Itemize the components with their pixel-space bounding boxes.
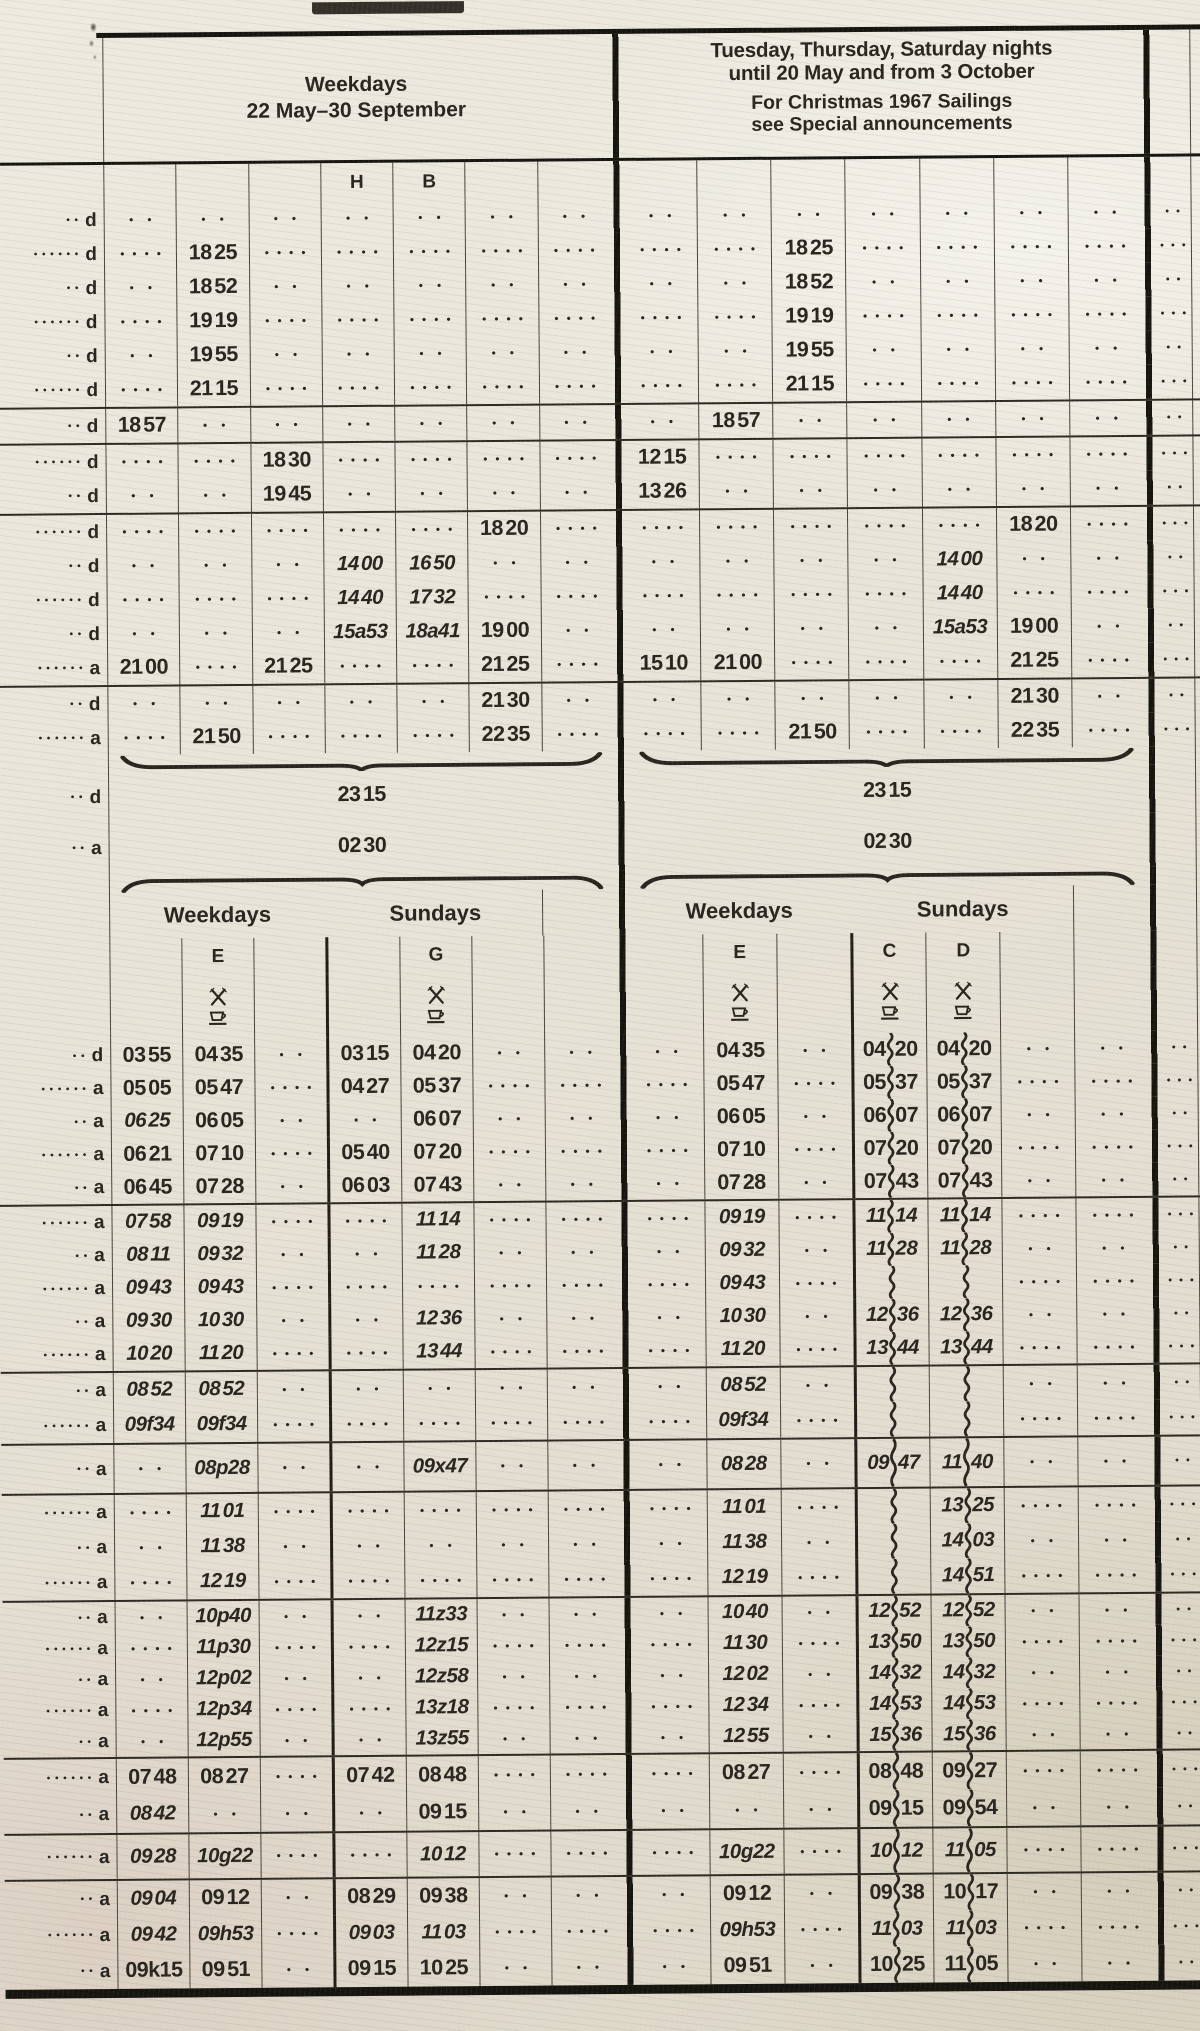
dots-cell: •••• [782,1689,856,1721]
stub-cell [1159,812,1196,866]
leader-dots: •• [1020,275,1056,287]
time-value: 19 00 [481,620,529,642]
time-value: 04 27 [341,1076,389,1098]
cup-icon [425,1009,448,1024]
leader-dots: •• [800,622,836,634]
time-cell: 07 20 [401,1135,473,1169]
leader-dots: •••• [715,379,764,391]
time-cell: 18 57 [698,404,772,439]
leader-dots: •••• [123,593,172,605]
time-cell: 10g22 [188,1834,260,1879]
time-cell: 18 20 [996,507,1070,542]
time-hours: 11 [942,1452,962,1473]
time-value: 12p34 [196,1699,252,1720]
leader-dots: •• [724,345,760,357]
center-heavy-divider [618,1268,632,1301]
stub-dots-cell: •• [1157,470,1194,504]
leader-dots: •••• [718,727,767,739]
weekdays-group-label: Weekdays [629,897,849,925]
time-cell: 08 42 [117,1795,188,1833]
dots-cell: •••• [778,1132,852,1166]
leader-dots: •• [1094,206,1130,218]
time-cell: 05 37 [400,1069,472,1103]
time-value: 04 35 [716,1040,764,1062]
leader-dots: •••• [564,1503,613,1515]
time-cell: 17 32 [396,580,469,615]
leader-dots: •••• [490,1279,539,1291]
dots-cell: •• [636,1791,709,1829]
leader-dots: •••• [1094,1340,1143,1352]
time-cell [854,1489,930,1525]
time-cell: 09 30 [113,1304,184,1338]
leader-dots: •• [808,1730,844,1742]
dots-cell: •••• [540,579,613,614]
leader-dots: ••• [1167,1140,1199,1152]
row-label: ••••••a [2,1495,114,1531]
center-heavy-divider [619,1404,633,1439]
dots-cell: •••• [624,232,697,267]
left-panel-row: 05 0505 47••••04 2705 37•••••••• [110,1068,616,1105]
dots-cell: •••• [697,300,771,335]
time-cell: 0915 [857,1790,933,1828]
dots-cell: •• [116,1663,187,1695]
time-hours: 11 [945,1918,965,1939]
time-value: 10p40 [195,1606,251,1627]
dots-cell: •••• [779,1266,853,1300]
dots-cell: •• [709,1791,783,1829]
time-minutes: 52 [899,1601,921,1622]
left-panel-row: 09 0409 12••08 2909 38•••• [117,1877,623,1917]
leader-dots: •••• [865,520,914,532]
leader-dots: •• [493,557,529,569]
dots-cell: •• [920,264,994,299]
right-panel-row: ••10 30••12361236•••• [632,1297,1150,1334]
time-cell: 1252 [931,1595,1005,1627]
leader-dots: •••• [797,1501,846,1513]
row-label: ••••••a [0,1206,112,1240]
leader-dots: •••• [273,1418,322,1430]
time-cell: 1453 [856,1689,932,1721]
arrive-marker: a [98,1701,109,1720]
column-letter: H [350,172,364,191]
leader-dots: ••• [1169,1411,1200,1423]
leader-dots: ••• [1170,1498,1200,1510]
time-value: 13z18 [415,1697,469,1718]
center-heavy-divider [620,1561,634,1596]
dots-cell: •• [539,405,612,440]
time-cell: 21 50 [775,715,849,750]
leader-dots: •• [77,1463,93,1475]
time-value: 18a41 [405,621,460,642]
leader-dots: •••••• [46,1643,95,1655]
left-panel-row: 06 2506 05••••06 07•••• [111,1101,617,1138]
dots-cell: •• [541,683,614,718]
leader-dots: •••• [716,521,765,533]
wavy-line-icon [892,1790,900,1827]
time-value: 09 43 [719,1273,765,1294]
time-cell: 19 00 [996,609,1070,644]
dots-cell: •• [320,201,393,236]
stub-cell [1160,884,1197,930]
time-cell: 09 15 [333,1951,407,1988]
leader-dots: •• [565,486,601,498]
depart-marker: d [90,788,102,807]
cup-icon [952,1005,975,1020]
dots-cell: •••• [633,1403,706,1439]
time-hours: 10 [870,1954,893,1976]
dots-cell: •• [545,1167,617,1201]
leader-dots: •• [1030,1455,1066,1467]
dots-cell: •• [255,1169,327,1203]
time-cell: 04 35 [182,1038,254,1072]
dots-cell: •••• [107,514,179,549]
wavy-line-icon [963,1366,971,1401]
leader-dots: •• [140,1611,176,1623]
leader-dots: •••• [790,450,839,462]
time-cell: 10 30 [184,1304,256,1338]
catering-symbols-cell [630,970,703,1035]
leader-dots: •••• [562,1279,611,1291]
center-heavy-divider [613,647,627,681]
wavy-line-icon [888,1266,896,1299]
time-value: 10g22 [197,1846,253,1867]
center-heavy-divider [617,1167,631,1200]
leader-dots: •••• [265,246,314,258]
row-label: ••d [0,617,107,652]
time-cell: 06 25 [112,1104,183,1138]
leader-dots: •• [418,211,454,223]
time-cell: 1403 [930,1523,1004,1559]
arrive-marker: a [93,1112,104,1131]
time-value: 18 30 [263,450,311,472]
dots-cell: •• [697,266,771,301]
dots-cell: •• [332,1794,406,1832]
time-cell: 08 52 [706,1368,780,1404]
leader-dots: •••• [1024,1843,1073,1855]
dots-cell: •••• [701,716,775,751]
time-value: 09 32 [197,1244,243,1265]
leader-dots: •••• [866,726,915,738]
dots-cell: •• [634,1525,707,1561]
leader-dots: •••• [555,380,604,392]
right-panel-row: ••08 28••09471140•••• [633,1437,1151,1489]
time-value: 09 19 [719,1207,765,1228]
dots-cell: •••• [919,230,993,265]
leader-dots: •• [70,698,86,710]
time-cell: 21 30 [469,684,542,719]
dots-cell: •• [1005,1594,1079,1626]
center-heavy-divider [610,301,624,335]
timetable-section-s12: ••••••a07 4808 27••••07 4208 48•••••••••… [4,1748,1200,1834]
leader-dots: •• [74,1116,90,1128]
time-cell: 0927 [932,1752,1006,1790]
leader-dots: •• [1174,1307,1196,1319]
time-cell: 1103 [933,1910,1007,1947]
leader-dots: •••••• [47,1772,96,1784]
leader-dots: •• [203,419,239,431]
wavy-line-icon [888,1332,896,1365]
wavy-line-icon [887,1200,895,1233]
dots-cell: •• [105,270,177,305]
time-hours: 09 [943,1797,966,1819]
dots-cell: •• [546,1301,618,1335]
leader-dots: •• [1168,551,1190,563]
row-label: ••a [1,1445,113,1494]
wavy-line-icon [961,1131,969,1164]
arrive-marker: a [94,1279,105,1298]
arrive-marker: a [99,1805,110,1824]
right-heavy-divider [1143,365,1156,399]
leader-dots: •• [1097,620,1133,632]
wavy-line-icon [962,1438,970,1486]
dots-cell: •• [1008,1945,1082,1982]
dots-cell: •••• [404,1562,476,1598]
dots-cell: •• [846,333,920,368]
catering-symbols-cell [182,974,255,1039]
time-value: 12 19 [200,1571,246,1592]
cup-icon [878,1005,901,1020]
leader-dots: •• [575,1805,611,1817]
leader-dots: •• [359,1733,395,1745]
leader-dots: •• [286,1891,322,1903]
wavy-line-icon [887,1233,895,1266]
row-label: ••a [0,1305,112,1339]
time-hours: 11 [866,1239,886,1260]
time-with-wavy: 0927 [942,1752,997,1789]
timetable-section-s14: ••a09 0409 12••08 2909 38••••••09 12••09… [5,1870,1200,1990]
leader-dots: •••• [565,1701,614,1713]
leader-dots: •• [1028,1242,1064,1254]
dots-cell: •• [777,1099,851,1133]
leader-dots: •• [492,347,528,359]
leader-dots: •• [500,1312,536,1324]
time-with-wavy: 1140 [942,1438,993,1486]
leader-dots: •••• [482,245,531,257]
time-cell: 12z58 [405,1661,477,1693]
leader-dots: •••• [1086,448,1135,460]
leader-dots: •••• [267,524,316,536]
time-cell [855,1524,931,1560]
leader-dots: •• [73,1050,89,1062]
time-cell: 07 28 [704,1166,778,1200]
time-cell: 0720 [927,1131,1001,1165]
row-label: ••••••a [0,721,108,756]
dots-cell: •• [774,611,848,646]
time-value: 17 32 [409,587,455,608]
leader-dots: •••••• [47,1851,96,1863]
leader-dots: •• [1172,1107,1194,1119]
dots-cell: •• [632,1234,705,1268]
leader-dots: •••• [273,1347,322,1359]
wavy-line-icon [965,1688,973,1719]
time-cell: 09f34 [706,1403,780,1439]
time-hours: 15 [869,1725,891,1746]
wavy-line-icon [891,1627,899,1658]
dots-cell: •••• [1079,1687,1153,1719]
dots-cell: •• [467,476,540,511]
service-letter-cell [253,937,325,974]
right-heavy-divider [1142,195,1155,229]
arrive-marker: a [98,1768,109,1787]
time-cell: 09 51 [189,1952,261,1989]
leader-dots: •• [724,277,760,289]
time-minutes: 14 [969,1205,991,1226]
stub-dots-cell: ••• [1162,1197,1199,1230]
leader-dots: •••• [650,1502,699,1514]
dots-cell: •••• [106,372,178,407]
leader-dots: •• [504,1890,540,1902]
center-heavy-divider [609,161,623,199]
center-heavy-divider [621,1722,635,1753]
wavy-line-icon [964,1488,972,1523]
leader-dots: •• [726,555,762,567]
dots-cell: •••• [636,1830,709,1875]
row-label: ••a [0,1171,111,1205]
center-heavy-divider [621,1598,635,1629]
left-panel-row: ••••••15a5318a4119 00•• [107,613,613,651]
time-with-wavy: 1325 [941,1488,994,1523]
wavy-line-icon [892,1753,900,1790]
dots-cell: •••• [549,1691,621,1723]
center-heavy-divider [612,545,626,579]
column-letter-cell [770,159,844,198]
center-heavy-divider [616,1035,630,1068]
leader-dots: •• [653,693,689,705]
dots-cell: •• [635,1659,708,1691]
leader-dots: •• [800,554,836,566]
right-panel-row: ••••09 19••••11141114•••••••• [631,1198,1149,1235]
dots-cell: •••• [1081,1909,1155,1946]
time-value: 07 10 [195,1143,243,1165]
column-letter-cell [696,160,770,199]
time-cell: 11 20 [705,1333,779,1367]
time-cell: 18 52 [771,265,845,300]
dots-cell: •• [845,265,919,300]
group-gap-column [1073,885,1148,932]
leader-dots: •• [1172,1041,1194,1053]
dots-cell: •••• [923,714,997,749]
center-heavy-divider [613,683,627,717]
dots-cell: •• [782,1658,856,1690]
right-panel-row: ••••11 30••••13501350•••••••• [635,1625,1153,1660]
right-panel-row: ••••08 27••••08480927•••••••• [636,1751,1154,1792]
dots-cell: •• [777,1033,851,1067]
leader-dots: •• [78,1542,94,1554]
dots-cell: •• [473,1102,545,1136]
time-minutes: 43 [896,1170,919,1192]
time-value: 11 20 [721,1339,765,1360]
time-cell: 09h53 [710,1912,784,1949]
time-value: 11 03 [421,1922,465,1943]
leader-dots: •••• [277,1927,326,1939]
stub-cell [1160,930,1197,966]
leader-dots: •• [657,1245,693,1257]
leader-dots: •••• [489,1145,538,1157]
dots-cell: •••• [116,1632,187,1664]
brace-bottom-icon [120,872,605,893]
dots-cell: •••• [546,1334,618,1368]
dots-cell: •••• [1002,1198,1076,1232]
stub-dots-cell: ••• [1164,1399,1200,1434]
dots-cell: •• [1000,1031,1074,1065]
dots-cell: •• [254,1037,326,1071]
leader-dots: •• [660,1669,696,1681]
left-panel-row: 06 2107 10••••05 4007 20•••••••• [111,1134,617,1171]
stub-dots-cell: ••• [1168,1908,1200,1944]
time-with-wavy: 1103 [945,1910,996,1946]
stub-dots-cell: ••• [1167,1750,1200,1787]
service-letter: G [428,945,443,964]
leader-dots: •••• [643,589,692,601]
time-minutes: 20 [969,1137,992,1159]
leader-dots: •• [1022,483,1058,495]
left-panel-row: 09 3010 30••••12 36•••• [112,1301,618,1338]
leader-dots: •• [1176,1533,1198,1545]
dots-cell: •• [259,1600,331,1632]
leader-dots: •••• [1013,586,1062,598]
leader-dots: •• [872,344,908,356]
dots-cell: •••• [403,1405,475,1441]
dots-cell: •• [1007,1873,1081,1910]
dots-cell: •• [260,1794,332,1832]
dots-cell: •• [257,1443,329,1492]
leader-dots: •• [279,1048,315,1060]
leader-dots: •••• [130,1576,179,1588]
time-cell: 16 50 [395,546,468,581]
dots-cell: •• [255,1103,327,1137]
leader-dots: •••••• [35,456,84,468]
depart-marker: d [86,313,98,332]
time-value: 09 51 [723,1955,771,1977]
time-value: 09 51 [202,1959,250,1981]
left-panel-span [110,971,616,1039]
arrive-marker: a [97,1670,108,1689]
right-panel-row: ••12 55••15361536•••• [635,1718,1153,1753]
right-heavy-divider [1144,541,1157,575]
service-letter-cell: G [399,936,471,973]
time-hours: 11 [945,1840,965,1861]
time-value: 09 12 [723,1883,771,1905]
left-panel-row: 21 00••••21 25••••••••21 25•••• [107,647,613,685]
leader-dots: •••• [557,658,606,670]
stub-dots-cell: ••• [1157,574,1194,608]
time-value: 12 15 [638,447,686,469]
dots-cell: •• [781,1524,855,1560]
time-hours: 04 [863,1039,886,1061]
time-value: 08 27 [200,1766,248,1788]
time-value: 09h53 [198,1924,254,1945]
leader-dots: •• [1027,1108,1063,1120]
leader-dots: •••• [1021,1499,1070,1511]
dots-cell: •• [993,195,1067,230]
leader-dots: •••• [1085,240,1134,252]
dots-cell: •••• [635,1690,708,1722]
time-cell: 1536 [856,1720,932,1752]
dots-cell: •• [1006,1788,1080,1826]
timetable-row: ••••••a09 2810g22••••••••10 12••••••••••… [4,1826,1200,1880]
time-value: 19 45 [263,484,311,506]
right-heavy-divider [1152,1487,1165,1522]
time-cell: 11 20 [184,1337,256,1371]
center-heavy-divider [610,267,624,301]
dots-cell: •• [465,268,538,303]
time-value: 07 20 [413,1141,461,1163]
row-label: ••••••a [2,1565,114,1601]
time-value: 09f34 [718,1410,768,1431]
time-hours: 10 [870,1841,892,1862]
row-label-gap [0,939,110,976]
dots-cell: •••• [774,645,848,680]
